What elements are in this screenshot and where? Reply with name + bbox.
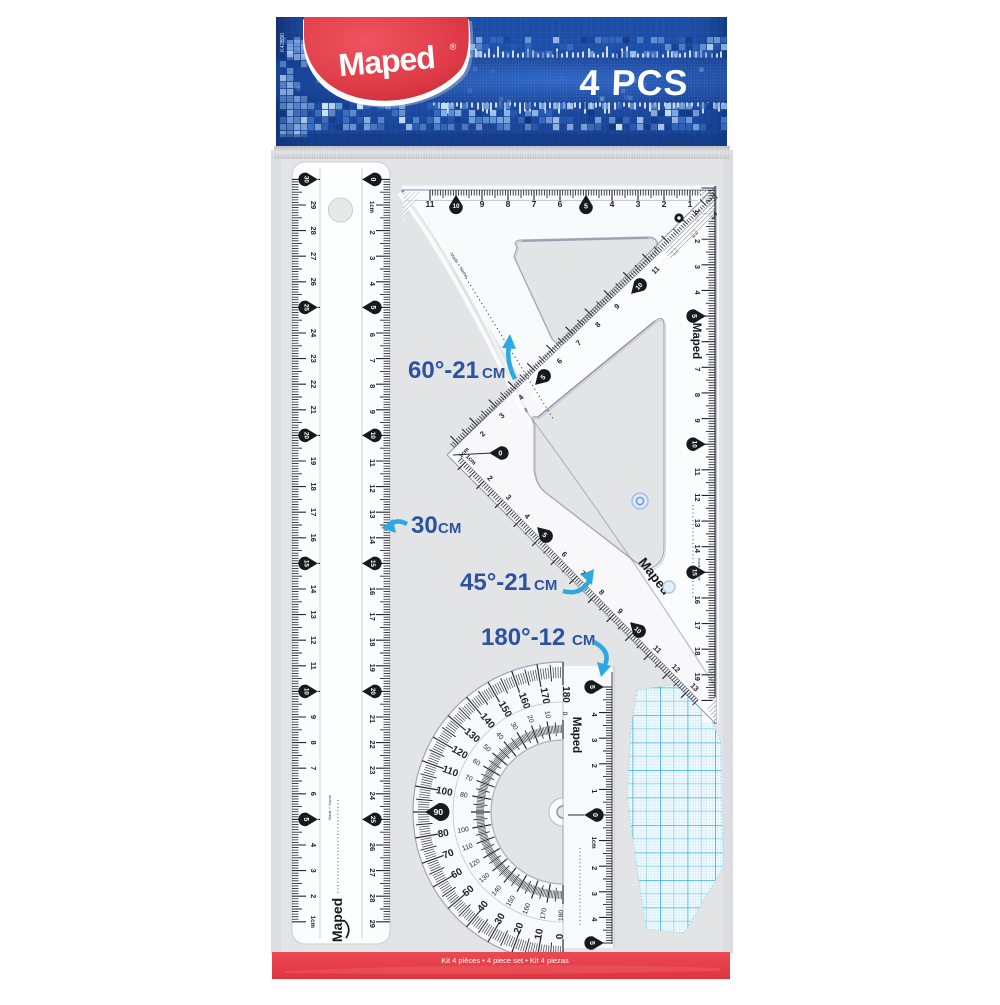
svg-text:0: 0: [561, 712, 568, 716]
svg-text:18: 18: [309, 482, 318, 490]
svg-text:7: 7: [693, 367, 702, 371]
svg-text:12: 12: [368, 484, 377, 492]
svg-text:5: 5: [584, 203, 588, 210]
svg-text:13: 13: [309, 610, 318, 618]
svg-text:®: ®: [450, 42, 457, 52]
svg-text:2: 2: [693, 239, 702, 243]
svg-text:0: 0: [369, 177, 376, 181]
svg-text:10: 10: [452, 203, 460, 210]
svg-text:27: 27: [368, 868, 377, 876]
svg-text:19: 19: [693, 673, 702, 681]
svg-text:27: 27: [309, 252, 318, 260]
svg-text:90: 90: [433, 807, 443, 817]
svg-text:8: 8: [368, 384, 377, 388]
svg-text:19: 19: [368, 664, 377, 672]
svg-text:180: 180: [558, 910, 565, 922]
svg-text:1: 1: [590, 789, 599, 793]
svg-text:29: 29: [368, 920, 377, 928]
svg-text:13: 13: [693, 519, 702, 527]
svg-text:1cm: 1cm: [368, 201, 374, 213]
svg-text:5: 5: [588, 941, 595, 945]
svg-text:15: 15: [369, 560, 376, 568]
svg-text:25: 25: [369, 816, 376, 824]
svg-text:8: 8: [309, 741, 318, 745]
svg-text:7: 7: [368, 359, 377, 363]
svg-text:1: 1: [688, 199, 693, 209]
svg-text:80: 80: [459, 791, 468, 799]
svg-text:5: 5: [588, 685, 595, 689]
svg-text:180: 180: [560, 686, 571, 703]
svg-text:Maped: Maped: [690, 323, 702, 359]
svg-text:18: 18: [693, 647, 702, 655]
svg-text:14: 14: [693, 545, 702, 554]
svg-text:30: 30: [302, 176, 309, 184]
svg-text:24: 24: [309, 329, 318, 338]
svg-text:10: 10: [302, 688, 309, 696]
svg-text:22: 22: [368, 740, 377, 748]
svg-text:17: 17: [368, 612, 377, 620]
svg-text:7: 7: [309, 766, 318, 770]
svg-text:2: 2: [368, 231, 377, 235]
svg-text:5: 5: [369, 305, 376, 309]
svg-text:CM: CM: [572, 632, 595, 649]
svg-text:13: 13: [368, 510, 377, 518]
svg-text:12: 12: [693, 493, 702, 501]
svg-text:5: 5: [690, 314, 697, 318]
svg-text:3: 3: [693, 265, 702, 269]
svg-text:6: 6: [309, 792, 318, 796]
svg-text:11: 11: [426, 199, 435, 209]
svg-text:CM: CM: [438, 520, 461, 537]
svg-text:26: 26: [368, 843, 377, 851]
svg-text:3: 3: [368, 256, 377, 260]
svg-text:9: 9: [693, 419, 702, 423]
svg-text:60°-21: 60°-21: [408, 357, 479, 384]
svg-text:22: 22: [309, 380, 318, 388]
svg-text:20: 20: [369, 688, 376, 696]
svg-text:21: 21: [309, 406, 318, 414]
svg-text:K42830: K42830: [280, 33, 286, 52]
svg-text:Made + Name: Made + Name: [327, 794, 332, 820]
svg-text:CM: CM: [482, 365, 505, 382]
svg-text:2: 2: [309, 894, 318, 898]
svg-text:19: 19: [309, 457, 318, 465]
svg-text:17: 17: [309, 508, 318, 516]
svg-text:17: 17: [693, 621, 702, 629]
svg-text:3: 3: [309, 869, 318, 873]
svg-text:15: 15: [690, 569, 697, 577]
svg-text:180°-12: 180°-12: [481, 624, 565, 651]
svg-text:8: 8: [506, 199, 511, 209]
svg-text:11: 11: [693, 468, 702, 476]
svg-text:45°-21: 45°-21: [460, 569, 531, 596]
svg-text:10: 10: [369, 432, 376, 440]
svg-text:made + wide: made + wide: [697, 558, 702, 582]
svg-text:14: 14: [309, 585, 318, 594]
svg-text:3: 3: [590, 892, 599, 896]
svg-text:30: 30: [411, 512, 438, 539]
svg-text:10: 10: [690, 441, 697, 449]
svg-text:26: 26: [309, 278, 318, 286]
svg-text:Kit 4 pièces • 4 piece set • K: Kit 4 pièces • 4 piece set • Kit 4 pieza…: [441, 956, 569, 965]
svg-text:2: 2: [590, 764, 599, 768]
svg-text:4: 4: [610, 199, 615, 209]
svg-text:18: 18: [368, 638, 377, 646]
svg-text:24: 24: [368, 792, 377, 801]
svg-text:12: 12: [309, 636, 318, 644]
svg-text:25: 25: [302, 304, 309, 312]
svg-text:28: 28: [368, 894, 377, 902]
svg-text:9: 9: [368, 410, 377, 414]
svg-text:11: 11: [368, 459, 377, 467]
svg-text:3: 3: [636, 199, 641, 209]
svg-text:11: 11: [309, 662, 318, 670]
svg-text:23: 23: [309, 354, 318, 362]
svg-text:2: 2: [662, 199, 667, 209]
svg-text:6: 6: [368, 333, 377, 337]
svg-text:16: 16: [693, 596, 702, 604]
svg-text:6: 6: [558, 199, 563, 209]
svg-text:9: 9: [480, 199, 485, 209]
svg-text:0: 0: [498, 451, 502, 458]
svg-text:8: 8: [693, 393, 702, 397]
svg-text:CM: CM: [534, 577, 557, 594]
svg-text:23: 23: [368, 766, 377, 774]
svg-text:15: 15: [302, 560, 309, 568]
svg-text:16: 16: [309, 534, 318, 542]
svg-text:9: 9: [309, 715, 318, 719]
svg-text:1cm: 1cm: [309, 916, 315, 928]
svg-text:29: 29: [309, 201, 318, 209]
svg-text:3: 3: [590, 738, 599, 742]
svg-text:Maped: Maped: [570, 717, 582, 753]
svg-text:0: 0: [555, 933, 566, 939]
svg-text:Maped: Maped: [329, 898, 345, 942]
svg-text:5: 5: [302, 817, 309, 821]
svg-text:16: 16: [368, 587, 377, 595]
svg-text:7: 7: [532, 199, 537, 209]
svg-text:10: 10: [543, 710, 551, 719]
svg-text:21: 21: [368, 715, 377, 723]
svg-text:1cm: 1cm: [590, 837, 596, 849]
svg-text:28: 28: [309, 226, 318, 234]
svg-text:20: 20: [302, 432, 309, 440]
svg-text:14: 14: [368, 536, 377, 545]
svg-text:4 PCS: 4 PCS: [579, 62, 689, 103]
svg-text:2: 2: [590, 866, 599, 870]
svg-text:0: 0: [591, 813, 598, 817]
